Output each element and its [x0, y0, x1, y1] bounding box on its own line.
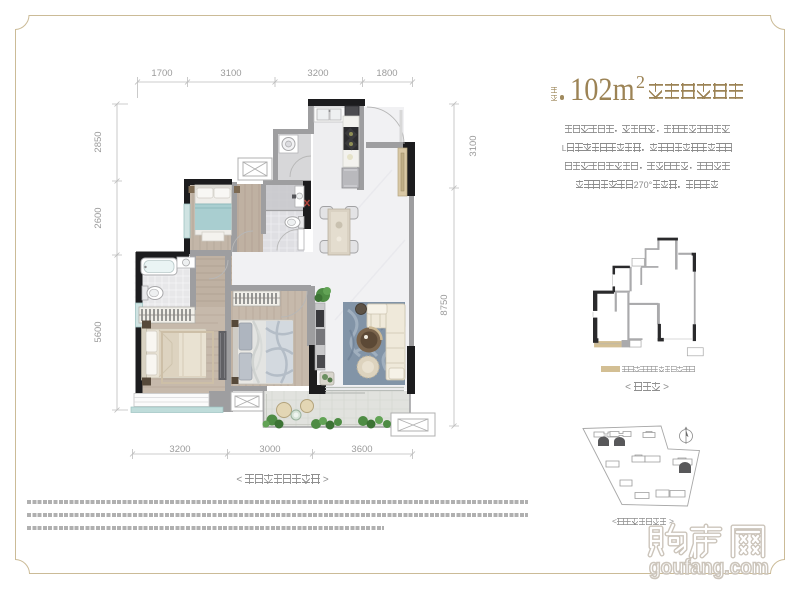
svg-text:goufang.com: goufang.com [649, 556, 769, 579]
